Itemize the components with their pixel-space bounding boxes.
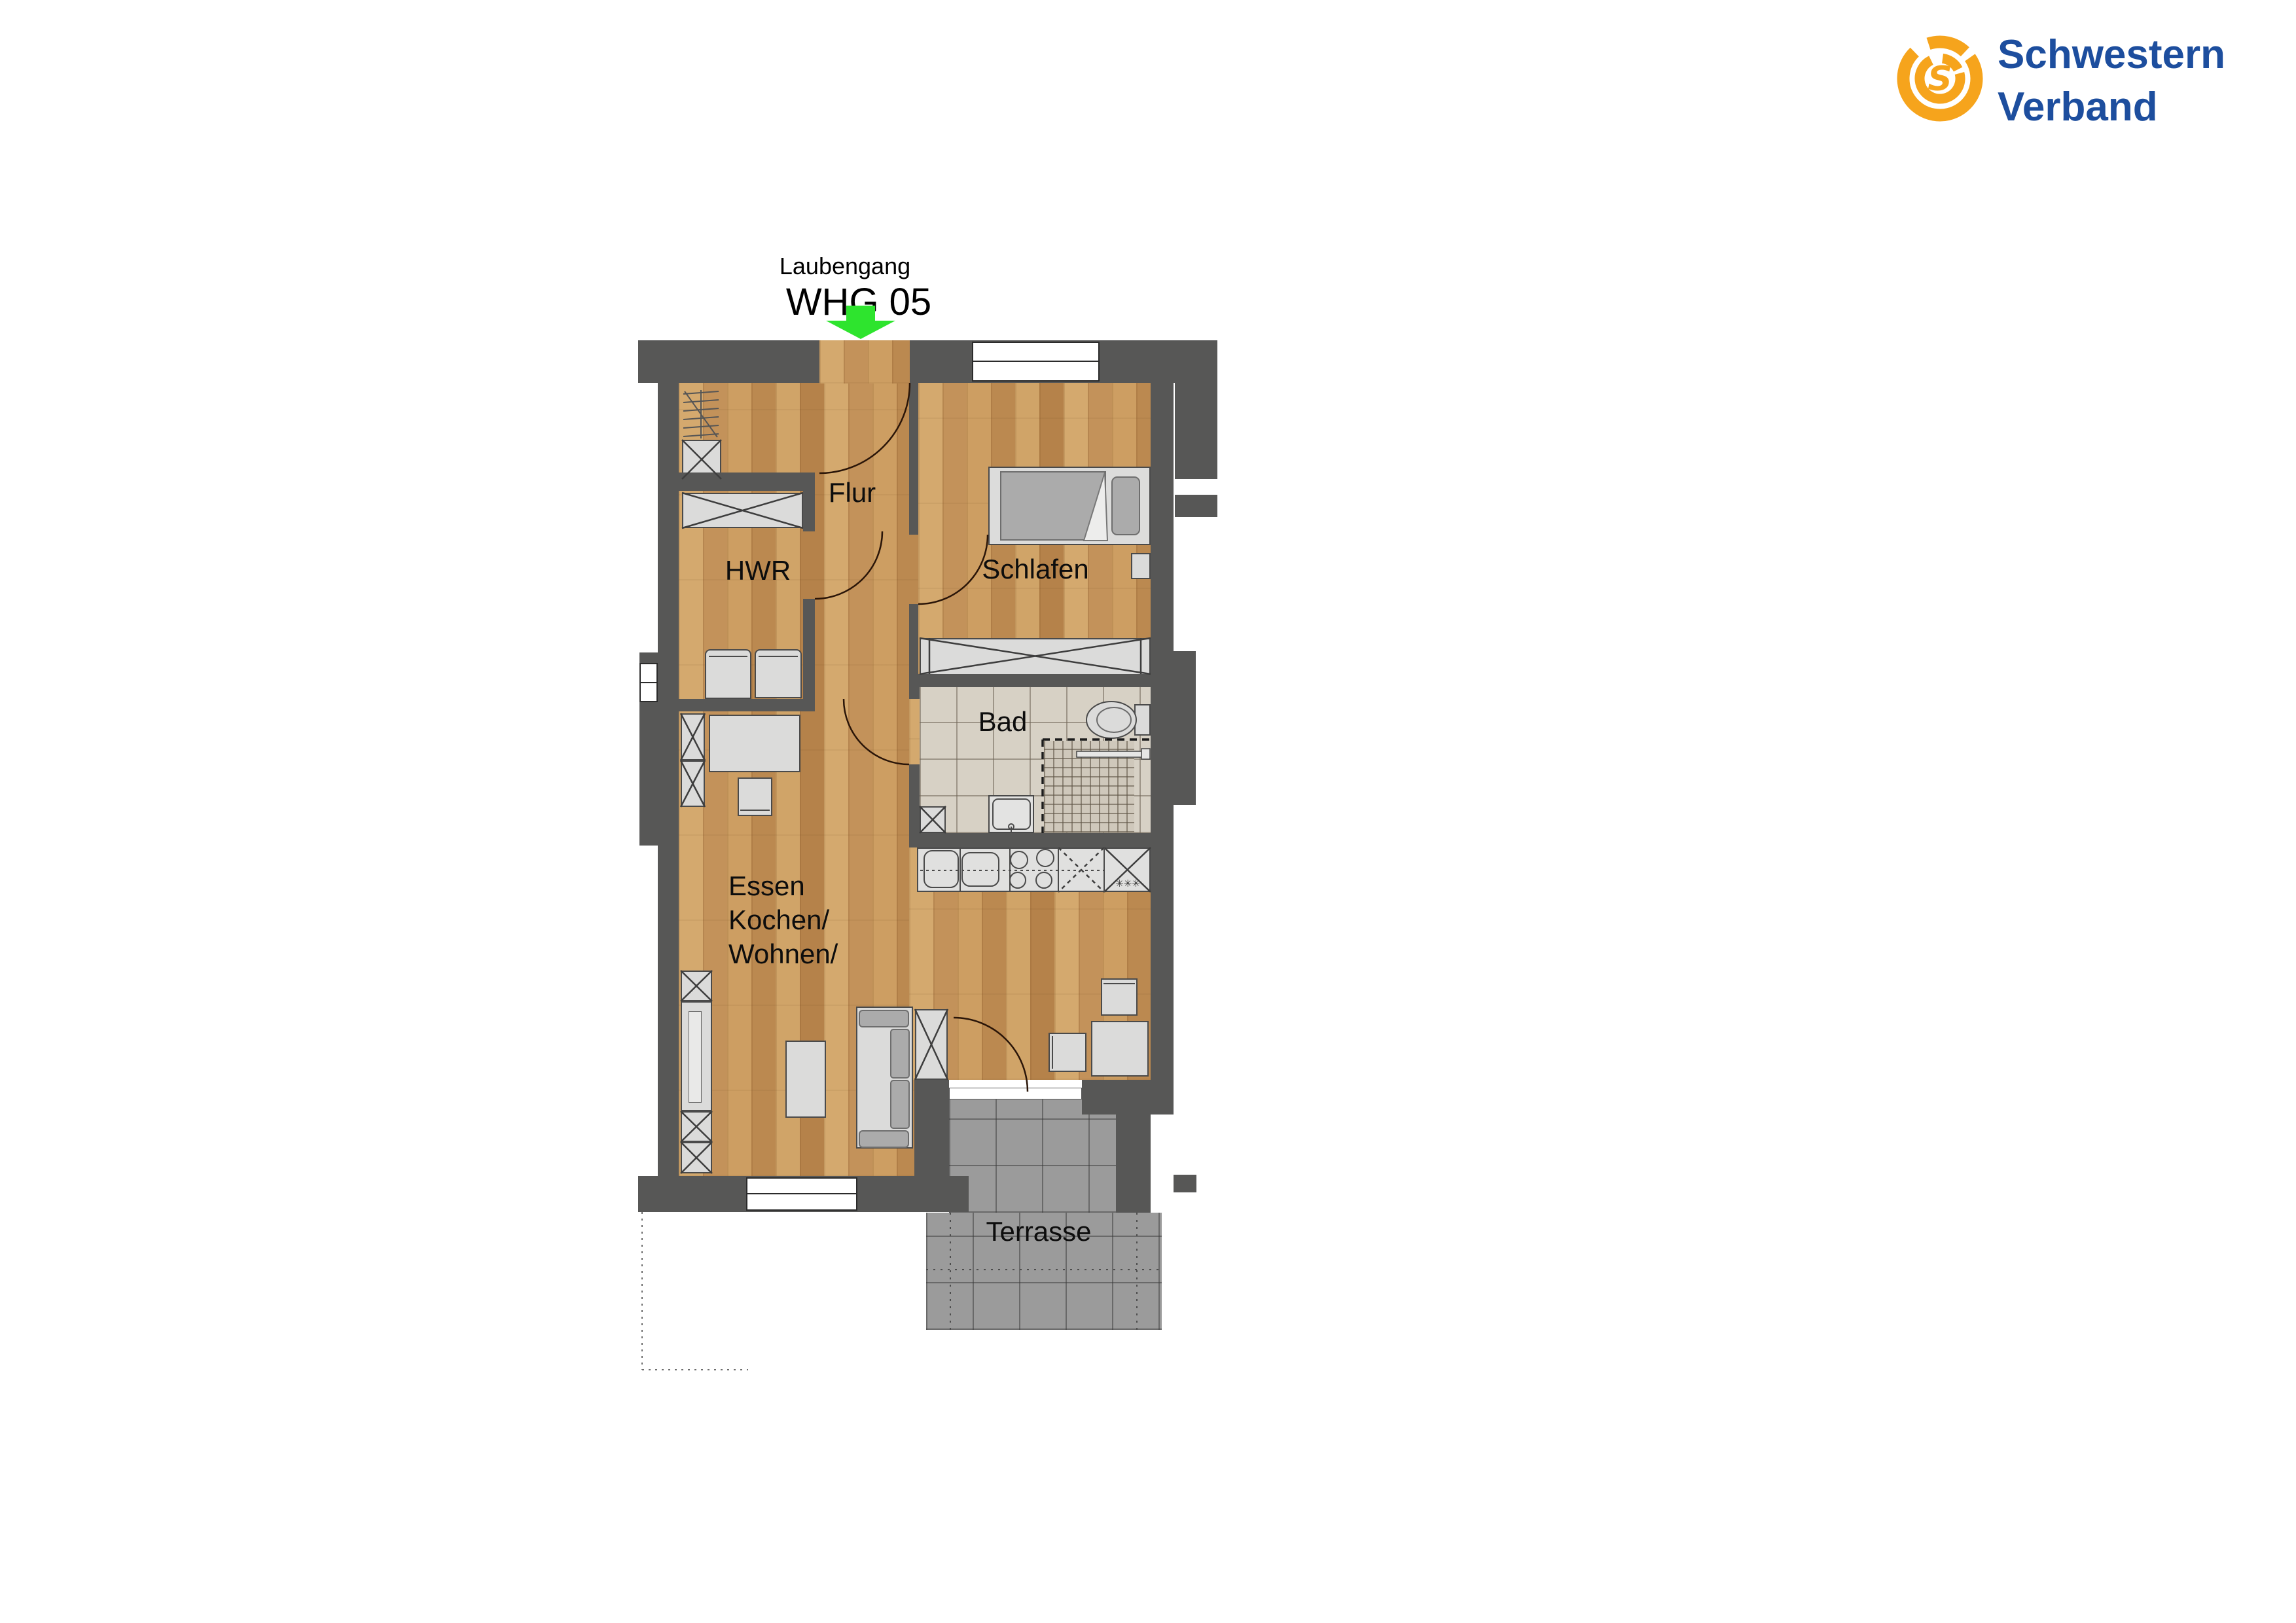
entrance-arrow-icon xyxy=(846,306,875,321)
floorplan-page: Flur HWR Schlafen Bad Essen Kochen/ Wohn… xyxy=(0,0,2296,1623)
room-label-wohnen-line: Essen xyxy=(728,869,838,903)
laubengang-label: Laubengang xyxy=(780,253,910,280)
logo-text-line1: Schwestern xyxy=(1998,31,2225,78)
logo-text-line2: Verband xyxy=(1998,84,2158,130)
room-label-terrasse: Terrasse xyxy=(986,1216,1091,1247)
room-label-wohnen-line: Wohnen/ xyxy=(728,937,838,971)
room-label-wohnen: Essen Kochen/ Wohnen/ xyxy=(728,869,838,971)
entrance-arrow-icon-head xyxy=(826,321,895,339)
room-label-schlafen: Schlafen xyxy=(982,554,1088,585)
bed-fold xyxy=(1084,473,1107,541)
room-label-wohnen-line: Kochen/ xyxy=(728,903,838,937)
washbasin-icon xyxy=(993,799,1030,833)
room-label-bad: Bad xyxy=(978,706,1028,738)
shower-rail xyxy=(1077,751,1145,757)
svg-text:S: S xyxy=(1928,60,1952,99)
coat-rack-icon xyxy=(683,390,719,438)
freezer-stars: ✳✳✳ xyxy=(1113,878,1143,889)
logo-icon: S xyxy=(1897,26,1992,134)
room-label-flur: Flur xyxy=(829,477,876,508)
toilet-icon xyxy=(1086,702,1136,738)
room-label-hwr: HWR xyxy=(725,555,791,586)
plan-linework xyxy=(0,0,2296,1623)
